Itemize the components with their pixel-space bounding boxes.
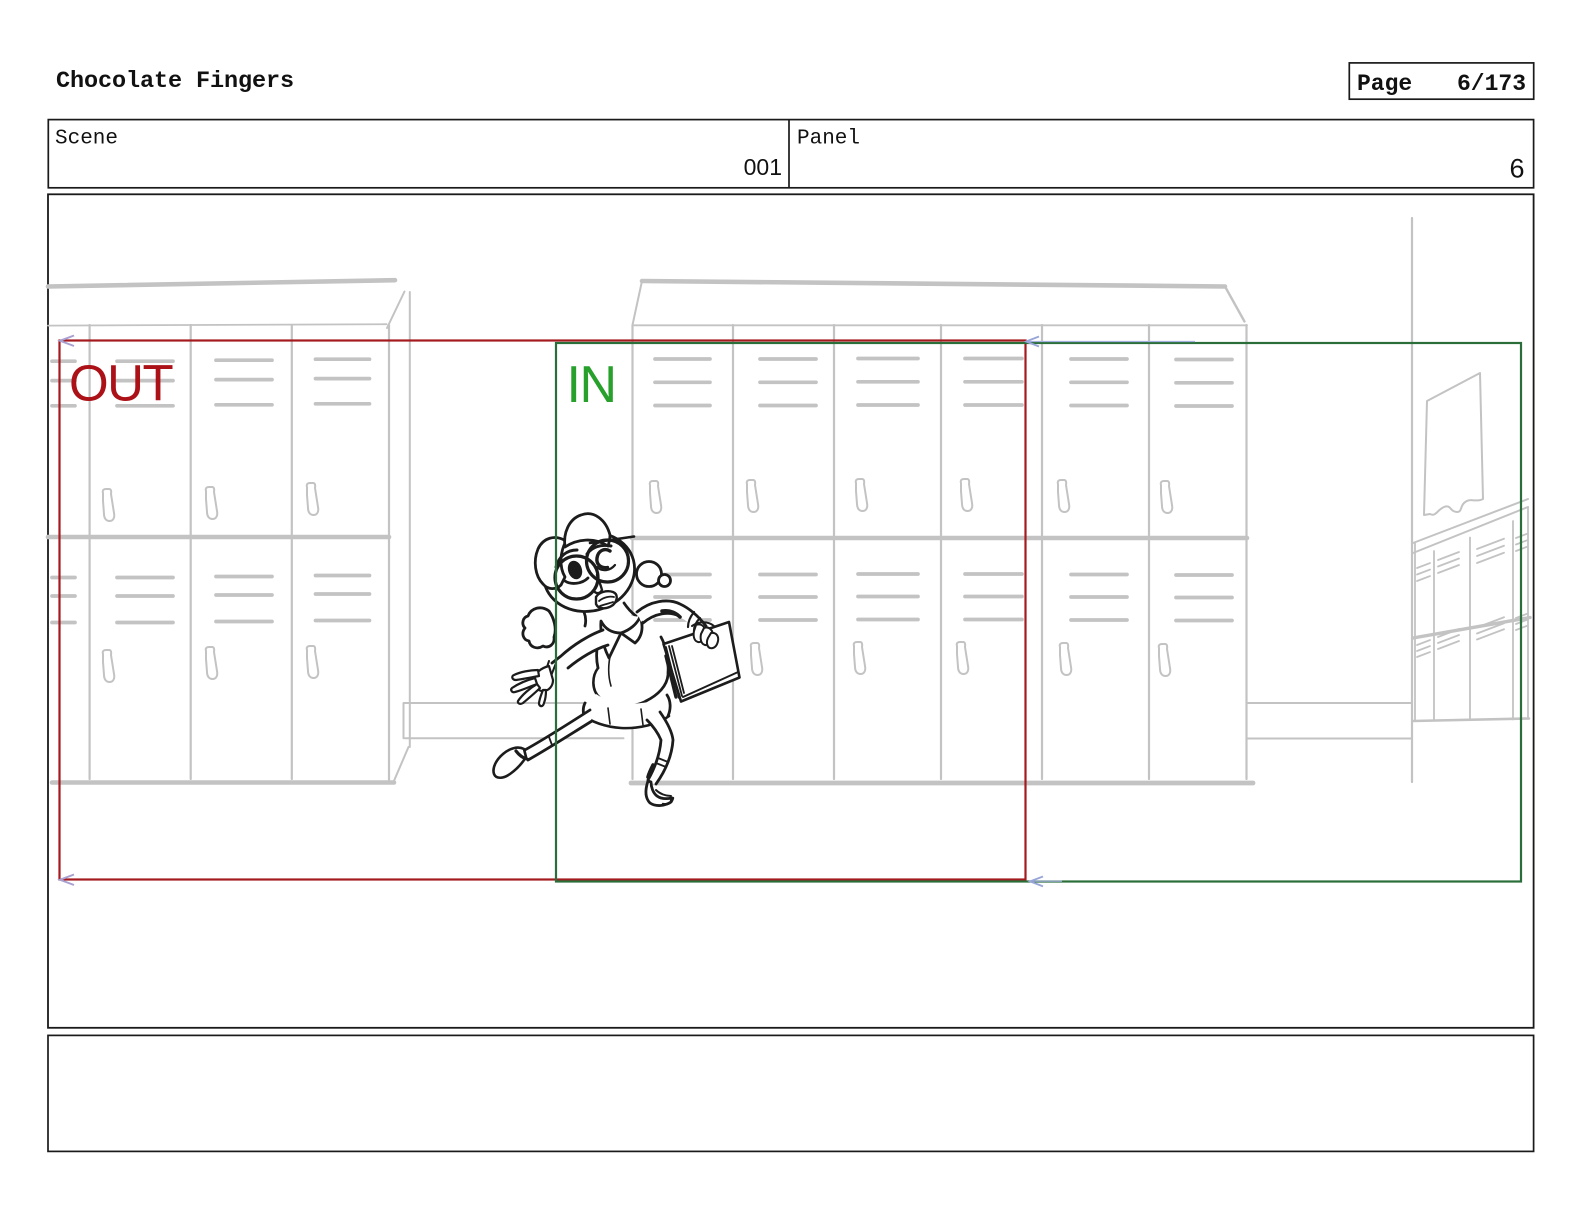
svg-text:6: 6 — [1509, 154, 1524, 184]
svg-text:6/173: 6/173 — [1457, 71, 1526, 97]
svg-text:001: 001 — [744, 154, 782, 180]
svg-text:Page: Page — [1357, 71, 1412, 97]
svg-text:OUT: OUT — [69, 355, 173, 412]
svg-text:IN: IN — [567, 356, 616, 414]
svg-text:Scene: Scene — [55, 128, 118, 151]
svg-text:Chocolate Fingers: Chocolate Fingers — [56, 68, 294, 95]
svg-text:Panel: Panel — [797, 128, 860, 151]
